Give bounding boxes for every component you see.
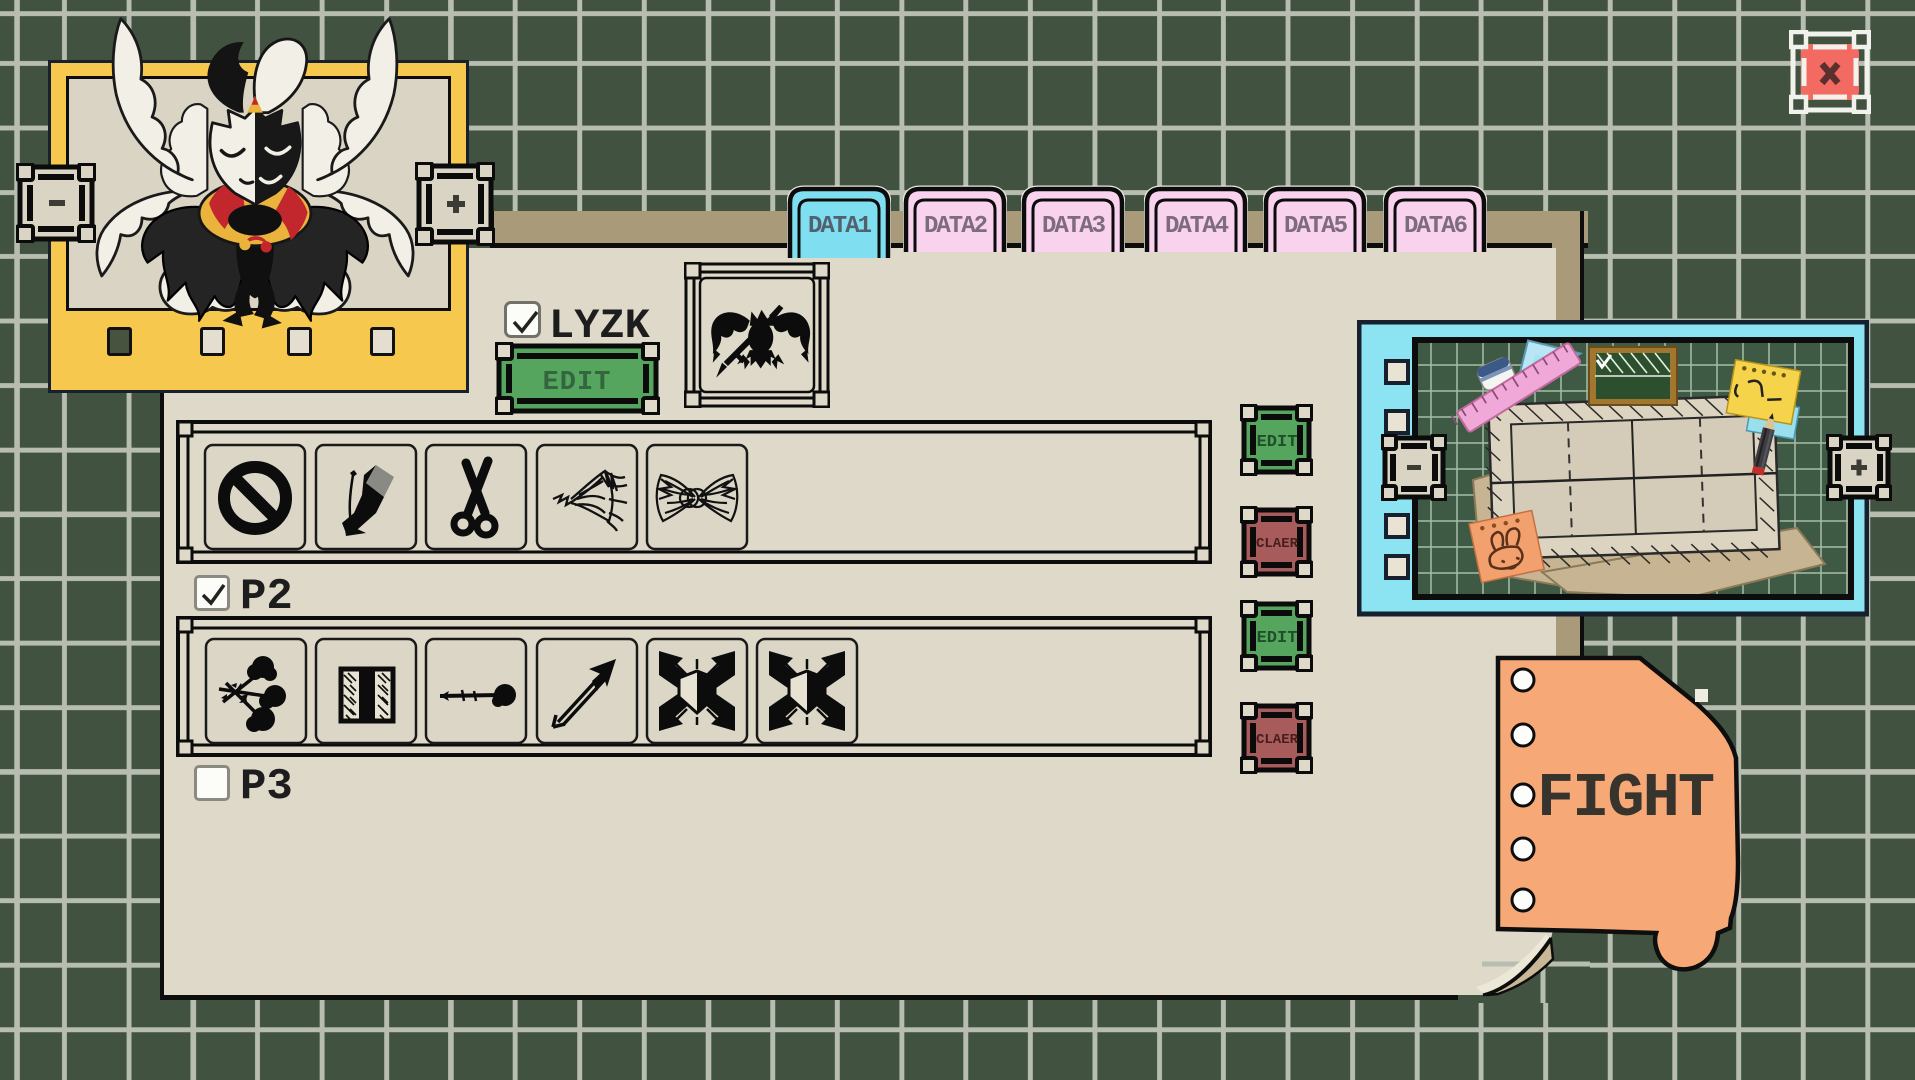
svg-text:DATA5: DATA5 [1284, 213, 1348, 240]
svg-text:CLAER: CLAER [1256, 536, 1299, 552]
svg-text:DATA4: DATA4 [1165, 213, 1229, 240]
svg-text:EDIT: EDIT [543, 368, 612, 398]
svg-text:DATA3: DATA3 [1042, 213, 1106, 240]
svg-text:EDIT: EDIT [1257, 433, 1298, 452]
svg-text:DATA6: DATA6 [1404, 213, 1468, 240]
svg-text:DATA2: DATA2 [924, 213, 987, 240]
svg-text:DATA1: DATA1 [808, 213, 872, 240]
svg-text:CLAER: CLAER [1256, 732, 1299, 748]
svg-text:FIGHT: FIGHT [1537, 763, 1714, 834]
svg-text:EDIT: EDIT [1257, 629, 1298, 648]
